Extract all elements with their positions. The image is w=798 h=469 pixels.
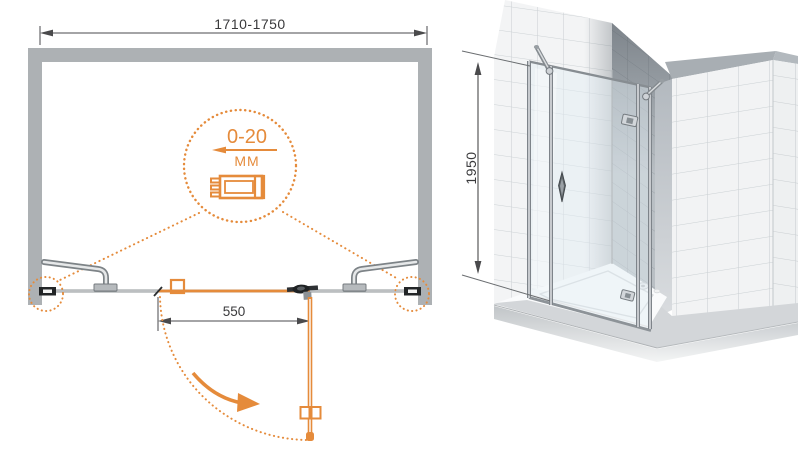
arrow-right-icon [414, 30, 427, 37]
wall-left [28, 48, 42, 305]
plan-view-svg: 1710-1750 0-20 MM [0, 0, 460, 469]
wall-profile-left [39, 287, 56, 296]
glass-clamp-left [94, 284, 117, 291]
callout-leaders [60, 212, 398, 280]
width-dimension-label: 1710-1750 [214, 16, 285, 32]
wall-profile-right [404, 287, 421, 296]
wall-right [418, 48, 432, 305]
drawing-canvas: 1710-1750 0-20 MM [0, 0, 798, 469]
wall-top [28, 48, 432, 62]
height-dimension-label: 1950 [463, 151, 479, 184]
glass-clamp-right [343, 284, 366, 291]
door-width-label: 550 [223, 304, 246, 319]
door-closed [154, 280, 310, 296]
door-bottom-pivot [306, 432, 314, 441]
arrow-left-icon [40, 30, 53, 37]
support-arm-right [343, 262, 416, 291]
door-handle-open [301, 407, 310, 419]
tiled-wall-right [672, 60, 798, 319]
adjustment-callout: 0-20 MM [184, 110, 296, 222]
elevation-view: 1950 [462, 0, 798, 362]
elevation-view-svg: 1950 [460, 0, 798, 469]
wall-inner-face [655, 79, 672, 318]
swing-arrow-icon [193, 373, 260, 412]
adjustment-value: 0-20 [227, 126, 267, 148]
support-arm-left [44, 262, 117, 291]
door-open [301, 297, 321, 441]
plan-view: 1710-1750 0-20 MM [28, 16, 432, 441]
glass-enclosure [529, 45, 665, 331]
adjustment-unit: MM [234, 153, 259, 169]
